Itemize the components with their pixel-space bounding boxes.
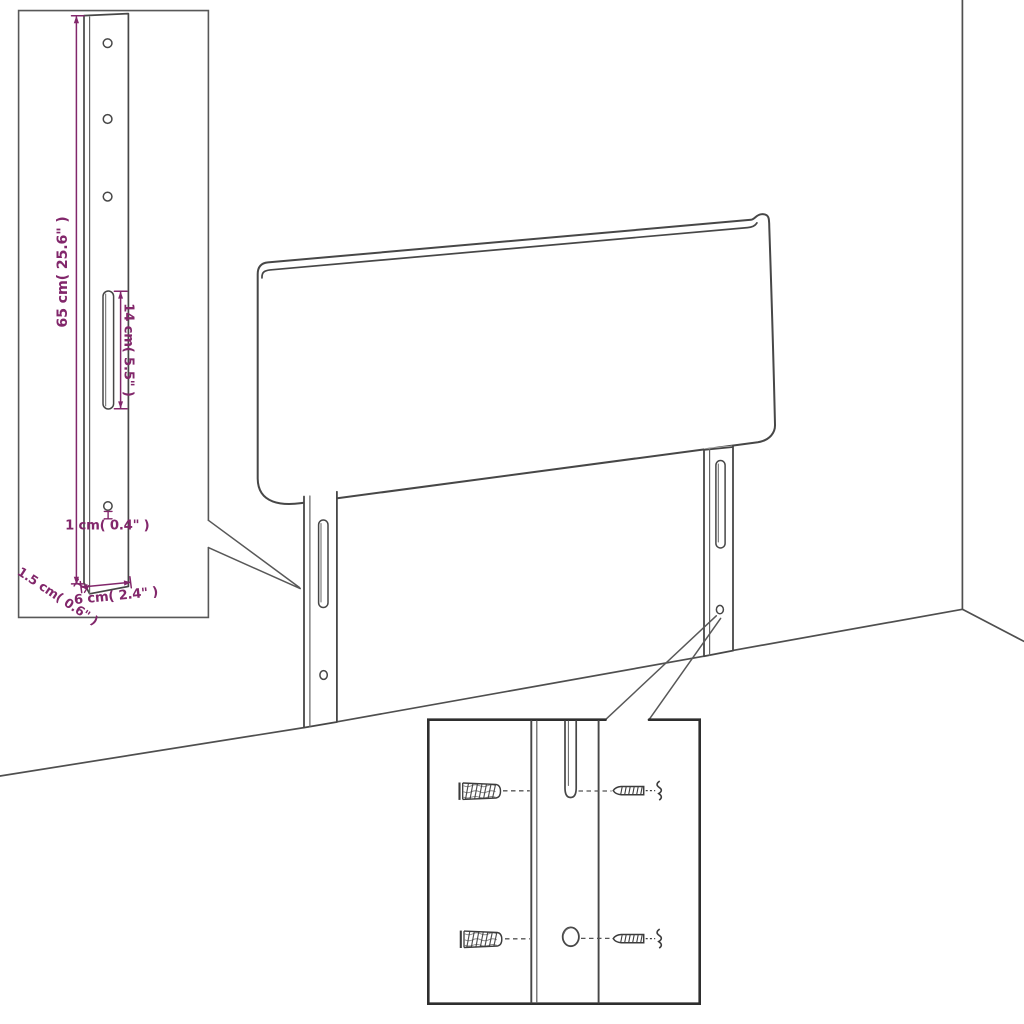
dimension-width: 6 cm( 2.4" ) [73, 577, 158, 608]
bracket-bottom-hole [104, 502, 112, 510]
dimension-height-label: 65 cm( 25.6" ) [55, 216, 71, 327]
detail-inset: 65 cm( 25.6" ) 14 cm( 5.5" ) 1 cm( 0.4" … [15, 11, 209, 628]
headboard-top-rim [262, 223, 757, 278]
dimension-height: 65 cm( 25.6" ) [55, 16, 84, 585]
hardware-inset-box [428, 720, 699, 1004]
headboard-panel [258, 214, 775, 504]
room-background [0, 0, 1024, 776]
floor-line-left [0, 728, 304, 776]
dimension-hole-diameter: 1 cm( 0.4" ) [65, 511, 149, 533]
dimension-slot-label: 14 cm( 5.5" ) [120, 303, 135, 396]
floor-line-middle [337, 656, 704, 722]
floor-line-right [962, 609, 1023, 641]
headboard-outline [258, 214, 775, 504]
callout-to-left-leg [208, 520, 300, 588]
bracket-slot [103, 291, 114, 409]
left-mounting-leg [304, 492, 337, 728]
assembly-diagram: 65 cm( 25.6" ) 14 cm( 5.5" ) 1 cm( 0.4" … [0, 0, 1024, 1024]
right-mounting-leg [704, 446, 733, 657]
bracket-hole-3 [103, 192, 112, 201]
dimension-slot-length: 14 cm( 5.5" ) [114, 291, 135, 409]
bracket-hole-1 [103, 39, 112, 48]
hardware-inset [428, 720, 699, 1004]
floor-line-behind-corner [733, 609, 962, 650]
bracket-hole-2 [103, 115, 112, 124]
dimension-hole-label: 1 cm( 0.4" ) [65, 519, 149, 534]
